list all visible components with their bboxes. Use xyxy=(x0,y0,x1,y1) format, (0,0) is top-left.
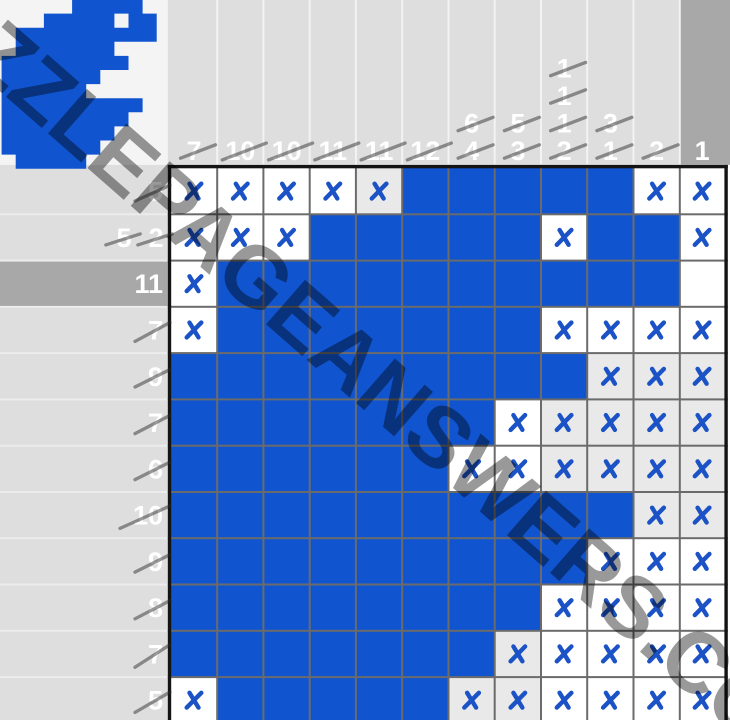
svg-text:10: 10 xyxy=(272,136,302,166)
svg-text:11: 11 xyxy=(365,136,394,166)
svg-text:1: 1 xyxy=(695,136,710,166)
svg-text:11: 11 xyxy=(319,136,348,166)
svg-text:10: 10 xyxy=(225,136,255,166)
svg-text:11: 11 xyxy=(134,269,163,299)
svg-text:12: 12 xyxy=(410,136,440,166)
